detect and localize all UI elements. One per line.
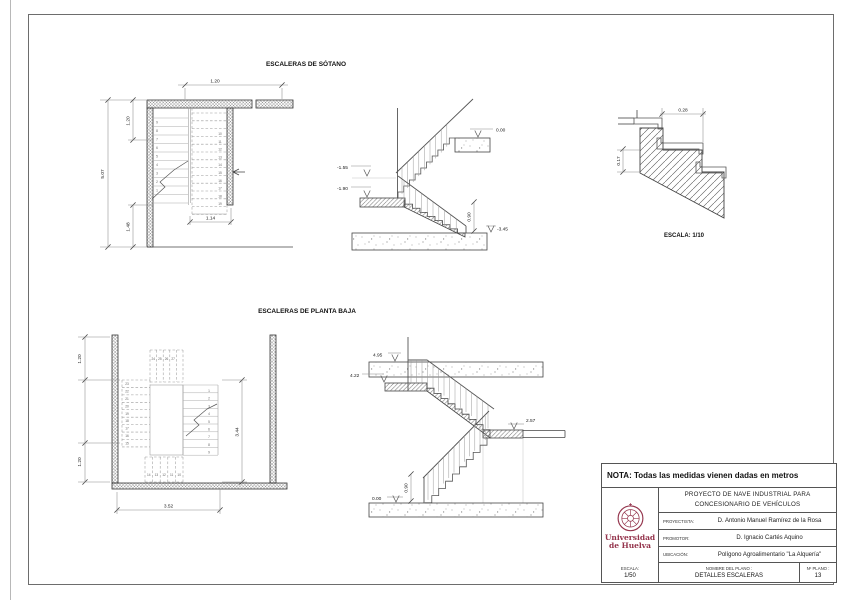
note-text: NOTA: Todas las medidas vienen dadas en … [602, 464, 836, 487]
step-number: 1 [208, 389, 210, 393]
university-seal-icon [614, 501, 647, 534]
row-value: D. Ignacio Cartés Aquino [703, 535, 836, 541]
step-number: 21 [125, 397, 129, 401]
step-number: 3 [156, 171, 158, 175]
level-label: 0.00 [496, 128, 506, 134]
dim-label: 3.44 [235, 427, 241, 437]
sotano-title: ESCALERAS DE SÓTANO [266, 59, 346, 68]
step-number: 26 [165, 357, 169, 361]
step-number: 3 [208, 404, 210, 408]
nplano-label: Nº PLANO : [807, 566, 830, 571]
dim-label: 1.20 [126, 116, 132, 126]
step-number: 7 [208, 435, 210, 439]
level-label: -3.45 [497, 227, 508, 233]
row-value: D. Antonio Manuel Ramírez de la Rosa [703, 518, 836, 524]
dim-label: 3.52 [164, 504, 174, 510]
step-number: 12 [218, 148, 222, 152]
nombre-value: DETALLES ESCALERAS [695, 573, 763, 579]
step-number: 18 [218, 194, 222, 198]
row-promotor: PROMOTOR: D. Ignacio Cartés Aquino [659, 530, 836, 547]
planta-baja-title: ESCALERAS DE PLANTA BAJA [258, 308, 356, 315]
step-number: 22 [125, 389, 129, 393]
detail-scale-label: ESCALA: 1/10 [664, 233, 705, 239]
step-detail-view [617, 108, 726, 218]
step-number: 9 [208, 451, 210, 455]
escala-value: 1/50 [624, 573, 636, 579]
step-number: 5 [208, 420, 210, 424]
project-line2: CONCESIONARIO DE VEHÍCULOS [695, 500, 801, 510]
title-block: NOTA: Todas las medidas vienen dadas en … [601, 463, 837, 583]
dim-label: 5.07 [100, 169, 106, 179]
drawing-sheet: 98765432110111213141516171819 1234567892… [0, 0, 848, 600]
nombre-label: NOMBRE DEL PLANO : [706, 566, 752, 571]
level-label: -1.90 [337, 186, 348, 192]
step-number: 23 [125, 382, 129, 386]
step-number: 13 [155, 473, 159, 477]
row-proyectista: PROYECTISTA: D. Antonio Manuel Ramírez d… [659, 513, 836, 530]
step-number: 14 [218, 163, 222, 167]
row-label: UBICACIÓN: [659, 552, 703, 557]
step-number: 16 [218, 179, 222, 183]
step-number: 11 [218, 140, 222, 144]
step-number: 2 [156, 180, 158, 184]
dim-label: 0.17 [616, 156, 622, 166]
step-number: 27 [171, 357, 175, 361]
numero-plano-cell: Nº PLANO : 13 [800, 563, 836, 582]
dim-label: 1.20 [77, 457, 83, 467]
dim-label: 0.90 [467, 212, 473, 222]
step-number: 8 [156, 129, 158, 133]
planta-baja-plan-view: 1234567892322212019181716152425262714131… [78, 334, 287, 514]
step-number: 24 [152, 357, 156, 361]
level-label: 4.22 [350, 373, 360, 379]
level-label: 0.00 [372, 496, 382, 502]
level-label: -1.55 [337, 165, 348, 171]
step-number: 17 [125, 427, 129, 431]
escala-label: ESCALA: [621, 566, 639, 571]
step-number: 8 [208, 443, 210, 447]
row-value: Polígono Agroalimentario "La Alquería" [703, 552, 836, 558]
project-title-cell: PROYECTO DE NAVE INDUSTRIAL PARA CONCESI… [659, 488, 836, 513]
dim-label: 1.48 [126, 222, 132, 232]
step-number: 19 [218, 202, 222, 206]
step-number: 4 [156, 163, 158, 167]
logo-text-line2: de Huelva [609, 542, 651, 550]
step-number: 13 [218, 155, 222, 159]
dim-label: 0.28 [678, 108, 688, 114]
dim-label: 1.20 [210, 79, 220, 85]
level-label: 4.95 [373, 353, 383, 359]
step-number: 2 [208, 397, 210, 401]
dim-label: 1.20 [77, 354, 83, 364]
step-number: 5 [156, 154, 158, 158]
nombre-plano-cell: NOMBRE DEL PLANO : DETALLES ESCALERAS [659, 563, 800, 582]
step-number: 15 [218, 171, 222, 175]
escala-cell: ESCALA: 1/50 [602, 563, 659, 582]
row-ubicacion: UBICACIÓN: Polígono Agroalimentario "La … [659, 547, 836, 563]
title-block-table: Universidad de Huelva PROYECTO DE NAVE I… [602, 487, 836, 582]
step-number: 18 [125, 419, 129, 423]
level-label: 2.57 [526, 418, 536, 424]
step-number: 10 [218, 132, 222, 136]
step-number: 10 [177, 473, 181, 477]
step-number: 14 [147, 473, 151, 477]
project-line1: PROYECTO DE NAVE INDUSTRIAL PARA [685, 490, 811, 500]
dim-label: 1.14 [206, 216, 216, 222]
step-number: 1 [156, 188, 158, 192]
step-number: 12 [162, 473, 166, 477]
title-block-bottom-row: ESCALA: 1/50 NOMBRE DEL PLANO : DETALLES… [602, 563, 836, 582]
row-label: PROYECTISTA: [659, 519, 703, 524]
step-number: 6 [208, 428, 210, 432]
step-number: 17 [218, 187, 222, 191]
step-number: 19 [125, 412, 129, 416]
step-number: 4 [208, 412, 210, 416]
step-number: 20 [125, 404, 129, 408]
row-label: PROMOTOR: [659, 536, 703, 541]
dim-label: 0.90 [404, 483, 410, 493]
step-number: 9 [156, 120, 158, 124]
step-number: 11 [170, 473, 174, 477]
planta-baja-section-view [362, 337, 565, 517]
nplano-value: 13 [815, 573, 822, 579]
step-number: 6 [156, 146, 158, 150]
step-number: 25 [158, 357, 162, 361]
step-number: 7 [156, 137, 158, 141]
sotano-section-view [351, 99, 496, 250]
step-number: 15 [125, 442, 129, 446]
university-logo: Universidad de Huelva [602, 488, 659, 563]
step-number: 16 [125, 434, 129, 438]
